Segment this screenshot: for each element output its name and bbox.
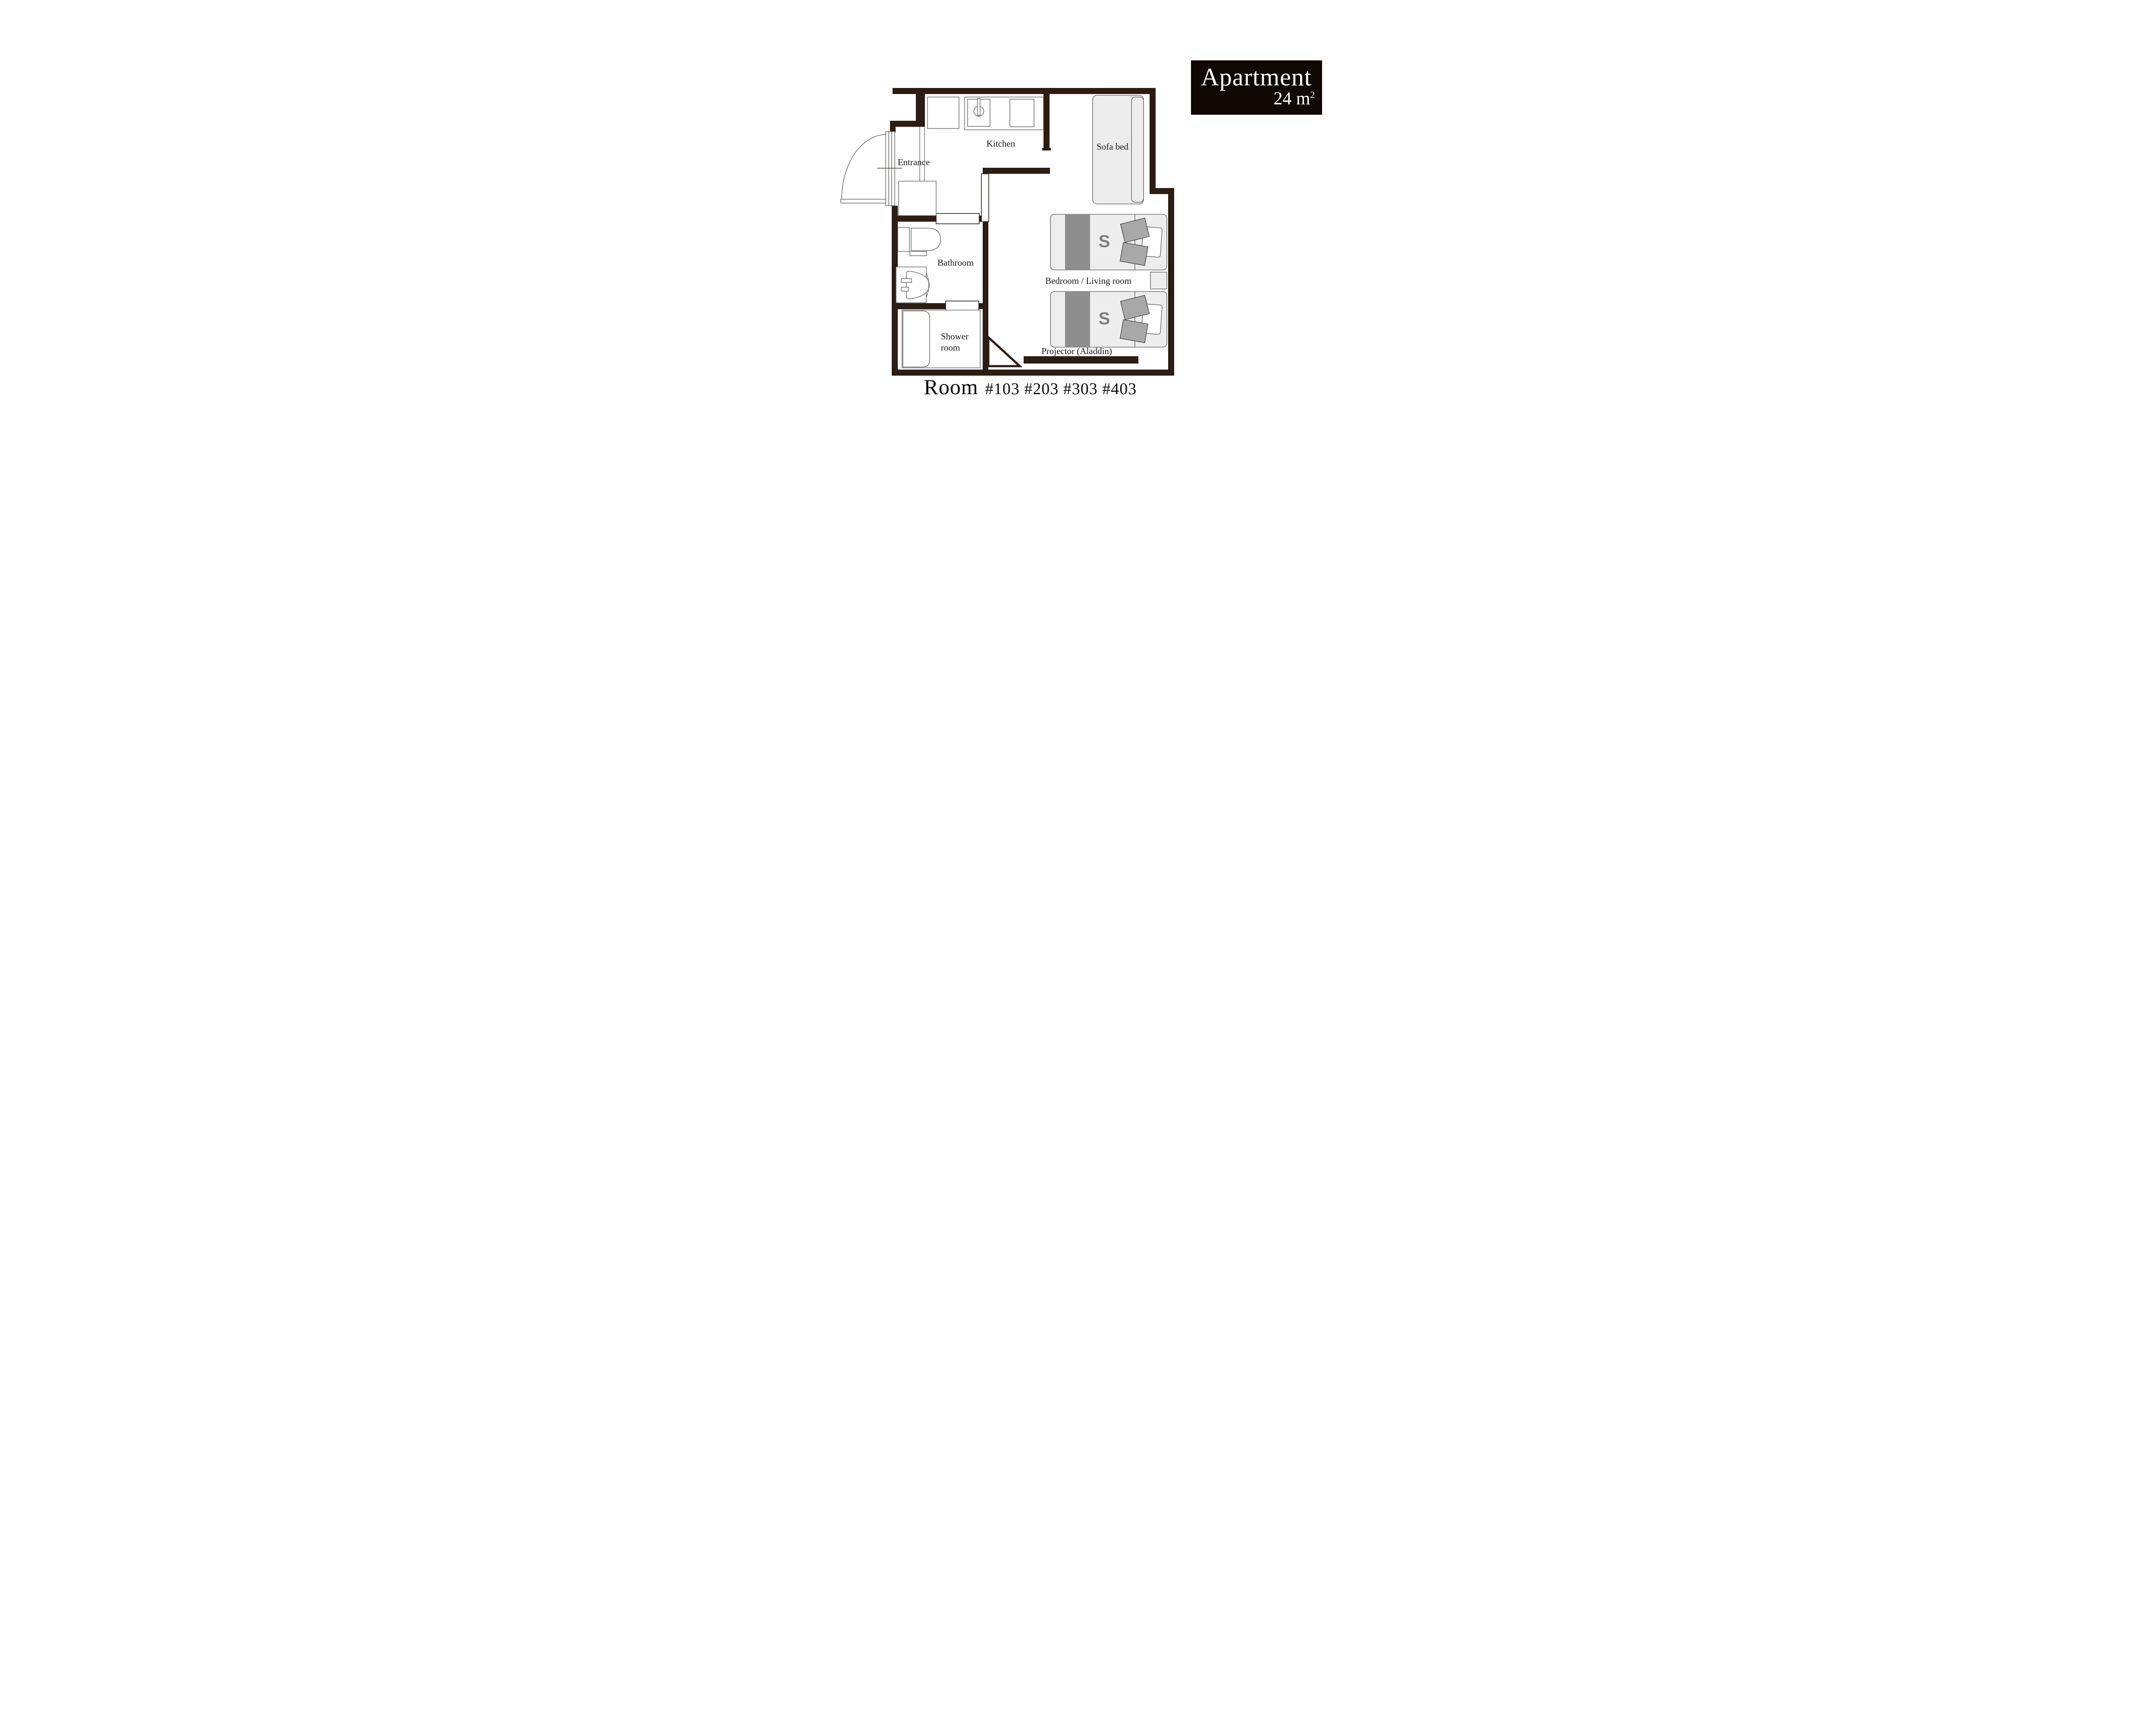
wall-right-upper — [1150, 88, 1156, 194]
wall-kitchen-divider-jamb — [1042, 148, 1051, 151]
floor-plan-page: S S Kitchen Entrance Bathroom Shower roo… — [791, 0, 1366, 431]
nightstand — [1150, 272, 1167, 289]
bed-duvet-band — [1065, 292, 1090, 347]
toilet-bowl — [911, 228, 940, 251]
page-title: Apartment — [1191, 65, 1322, 90]
entrance-door-leaf — [841, 199, 886, 203]
entrance-group — [841, 132, 936, 216]
projector-label: Projector (Aladdin) — [1041, 346, 1112, 356]
living-room-door — [981, 174, 989, 222]
toilet-tank — [898, 227, 909, 251]
bed-pillow-gray — [1120, 320, 1148, 342]
bed-size-mark: S — [1098, 309, 1110, 328]
bathroom-door — [936, 213, 979, 224]
shoe-cabinet — [899, 181, 936, 216]
area-label: 24 m2 — [1191, 90, 1322, 108]
shower-room-label-line2: room — [941, 342, 960, 353]
bedroom-living-label: Bedroom / Living room — [1045, 276, 1131, 286]
wall-top — [893, 88, 1156, 94]
area-exponent: 2 — [1310, 89, 1315, 100]
bathroom-group — [896, 227, 940, 303]
tap-cold — [901, 287, 909, 291]
wall-right-lower — [1168, 188, 1174, 376]
projector-board — [1024, 356, 1138, 364]
bed-single-1: S — [1050, 214, 1167, 270]
area-value: 24 m — [1273, 89, 1310, 109]
corner-door-triangle — [988, 337, 1020, 366]
bed-pillow-gray — [1120, 242, 1148, 265]
tap-hot — [901, 279, 912, 282]
room-footer-label: Room — [924, 374, 978, 399]
sofa-backrest — [1131, 97, 1144, 202]
room-footer-numbers: #103 #203 #303 #403 — [985, 379, 1137, 398]
furniture: S S — [1050, 95, 1167, 347]
wall-kitchen-divider — [1044, 88, 1050, 148]
kitchen-faucet — [978, 98, 980, 116]
title-card: Apartment 24 m2 — [1191, 60, 1322, 115]
entrance-door-frame — [886, 132, 895, 206]
entrance-label: Entrance — [897, 157, 930, 167]
room-footer: Room #103 #203 #303 #403 — [924, 374, 1137, 399]
bed-duvet-band — [1065, 214, 1090, 270]
entrance-door-swing-arc — [842, 135, 886, 199]
bed-size-mark: S — [1098, 232, 1110, 251]
bathroom-label: Bathroom — [937, 257, 974, 268]
refrigerator — [928, 97, 959, 129]
sliding-doors — [936, 174, 989, 311]
wall-entrance-kitchen-strip — [920, 94, 925, 127]
shower-tray — [903, 311, 930, 367]
kitchen-stove-unit — [1010, 99, 1034, 127]
wall-corridor-horizontal — [983, 168, 1050, 174]
wall-entry-top-horizontal — [890, 121, 922, 127]
sofa-bed-label: Sofa bed — [1096, 141, 1128, 152]
thin-wall-strip — [920, 127, 924, 181]
shower-room-label-line1: Shower — [941, 331, 968, 342]
toilet-base — [910, 251, 927, 256]
bed-single-2: S — [1050, 292, 1167, 347]
kitchen-group — [928, 97, 1044, 130]
kitchen-label: Kitchen — [986, 138, 1015, 149]
